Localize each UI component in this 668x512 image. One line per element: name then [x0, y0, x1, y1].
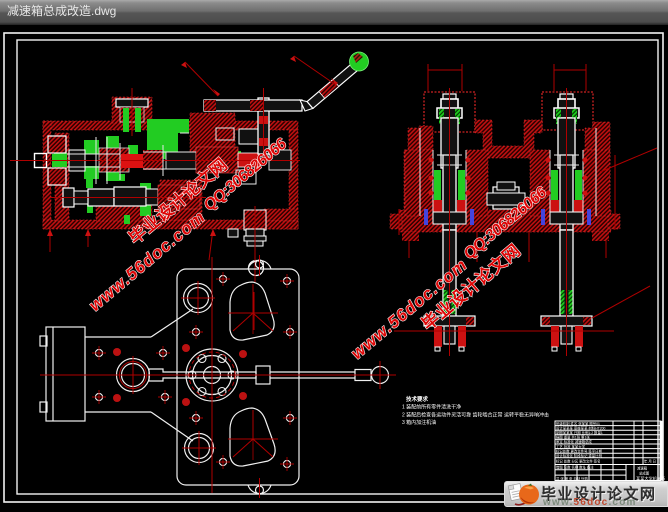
svg-text:审定 标准化 减速箱总成: 审定 标准化 减速箱总成 — [556, 439, 592, 444]
svg-text:制图某某某 日期 比例1:2 数量1: 制图某某某 日期 比例1:2 数量1 — [556, 430, 603, 435]
svg-text:借图 记数 名称 数址 备注: 借图 记数 名称 数址 备注 — [556, 465, 594, 470]
svg-text:1 装配前所有零件清洗干净: 1 装配前所有零件清洗干净 — [402, 404, 461, 411]
svg-text:总成图: 总成图 — [639, 471, 650, 476]
svg-text:2 装配后检查各运动件灵活可靠 齿轮啮合正常 运转平稳: 2 装配后检查各运动件灵活可靠 齿轮啮合正常 运转平稳无异响冲击 — [402, 412, 549, 419]
svg-text:技术要求: 技术要求 — [406, 395, 429, 403]
svg-text:设计某某某 审核某某 材料HT200: 设计某某某 审核某某 材料HT200 — [556, 425, 605, 430]
svg-text:工艺 批准 某某大学: 工艺 批准 某某大学 — [556, 444, 586, 449]
svg-text:标记处数 更改文件号 签字日期: 标记处数 更改文件号 签字日期 — [556, 448, 603, 453]
svg-text:设计标准化 阶段标记 重量比例: 设计标准化 阶段标记 重量比例 — [556, 453, 603, 458]
svg-text:年 月 日: 年 月 日 — [644, 459, 656, 464]
svg-text:班级机制 姓名 张某某 图号01: 班级机制 姓名 张某某 图号01 — [556, 421, 600, 426]
svg-text:描图 重量 共1张 第1张: 描图 重量 共1张 第1张 — [556, 435, 590, 440]
svg-text:3 箱内加注机油: 3 箱内加注机油 — [402, 419, 436, 426]
svg-text:标记 处数 分区 更改文件 签名: 标记 处数 分区 更改文件 签名 — [556, 459, 600, 464]
svg-text:减速箱: 减速箱 — [637, 466, 648, 471]
